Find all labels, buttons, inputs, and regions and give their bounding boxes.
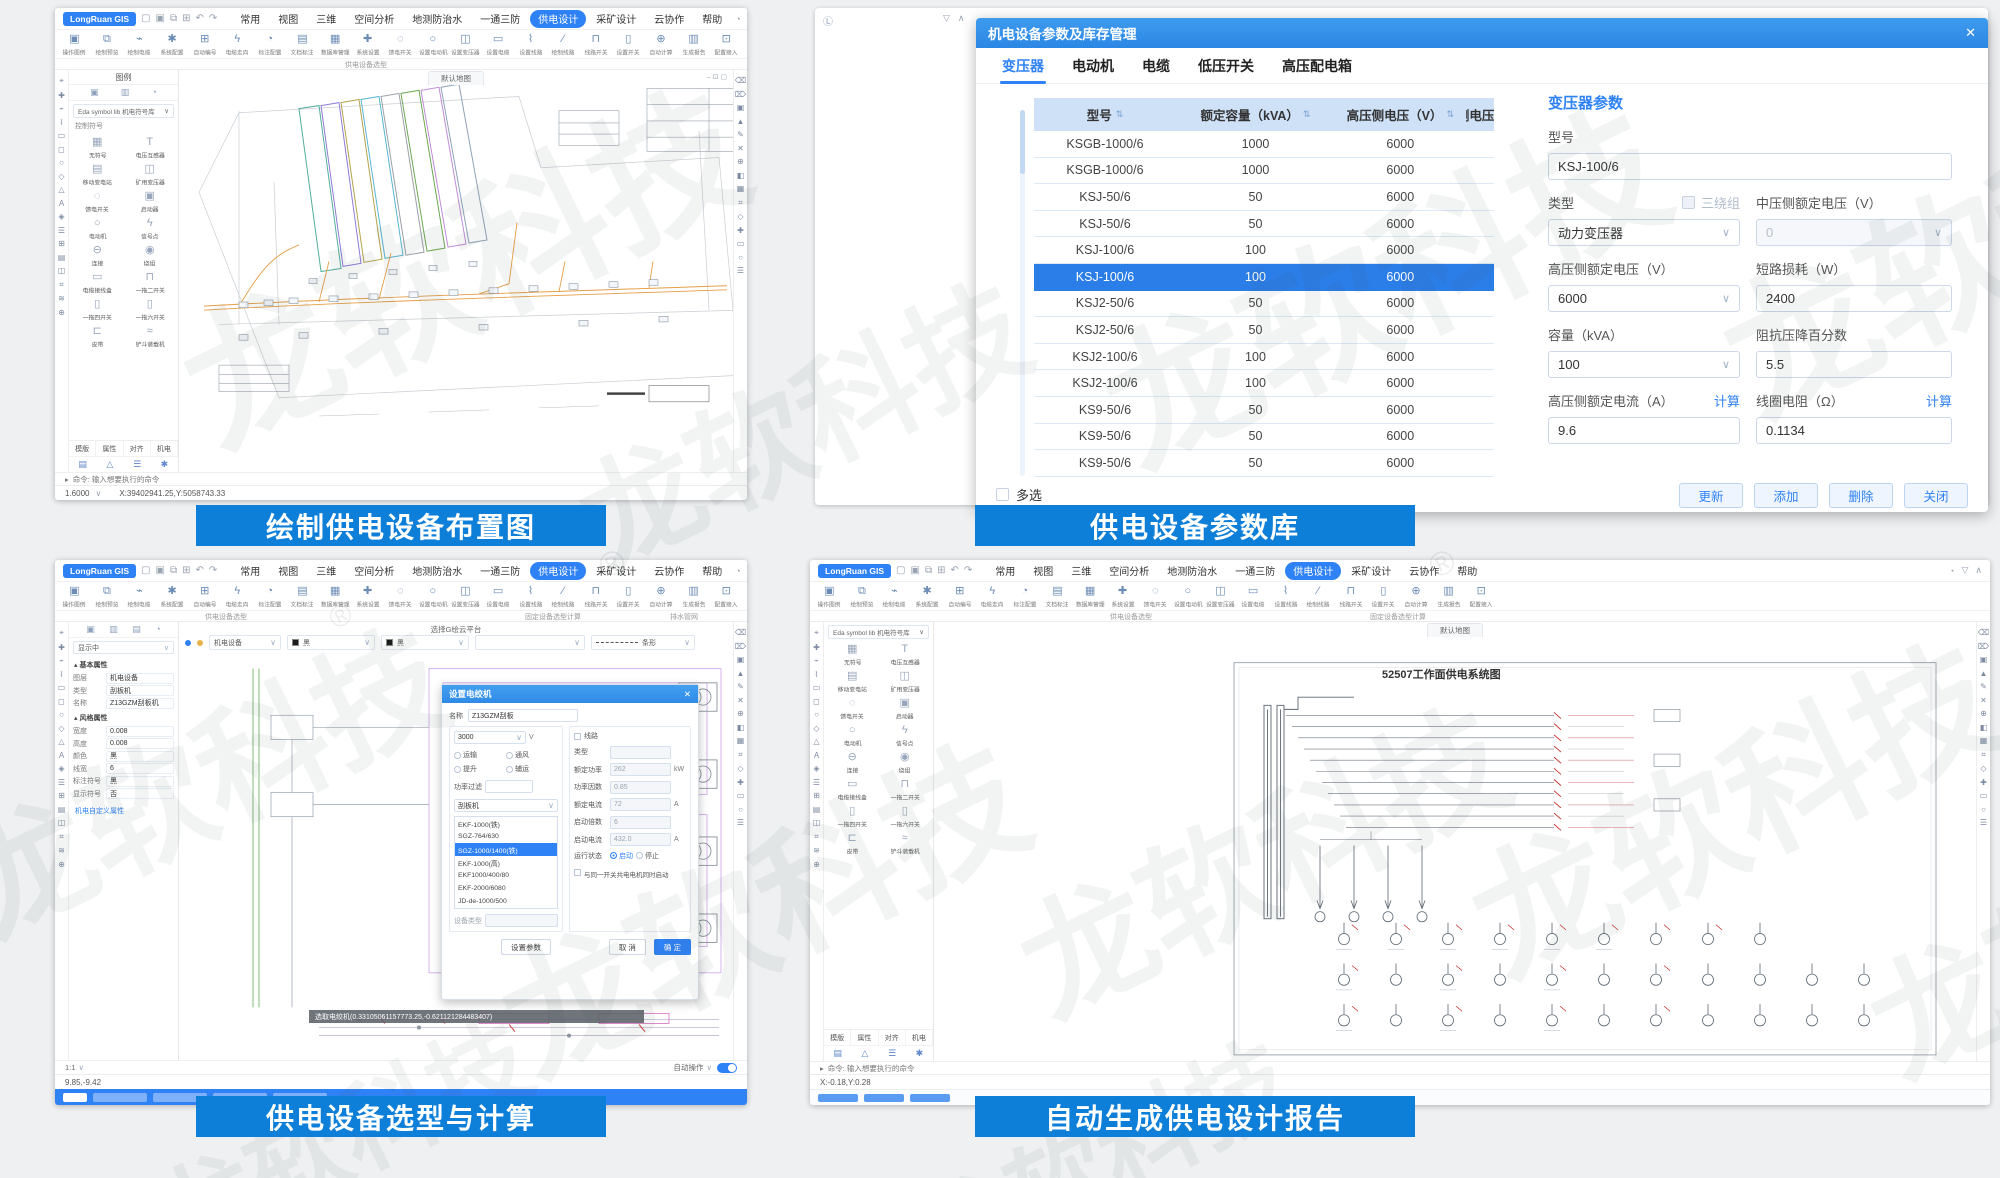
- device-type-input[interactable]: [485, 914, 558, 927]
- titlebar-icon[interactable]: ⊞: [182, 565, 190, 576]
- edit-tool-icon[interactable]: ☰: [1980, 818, 1987, 827]
- edit-tool-icon[interactable]: ⊕: [737, 709, 744, 718]
- property-row[interactable]: 颜色 黑: [73, 751, 174, 762]
- use-radio[interactable]: 运输: [454, 750, 506, 760]
- titlebar-icon[interactable]: ⧉: [170, 13, 177, 24]
- menu-item[interactable]: 地测防治水: [1159, 562, 1225, 580]
- sort-icon[interactable]: ⇅: [1446, 109, 1454, 120]
- table-row[interactable]: KSJ2-100/6 100 6000: [1034, 370, 1494, 397]
- color-select[interactable]: 黑∨: [287, 635, 375, 650]
- menu-item[interactable]: 帮助: [694, 10, 730, 28]
- titlebar-icon[interactable]: ▣: [910, 565, 919, 576]
- symbol-item[interactable]: ϟ 信号点: [124, 217, 177, 241]
- symbol-item[interactable]: ϟ 信号点: [879, 724, 932, 748]
- toolbar-button[interactable]: ▦ 数据库管理: [1074, 585, 1107, 609]
- set-params-button[interactable]: 设置参数: [501, 939, 551, 955]
- toolbar-button[interactable]: ▭ 设置电缆: [1237, 585, 1270, 609]
- titlebar-icon[interactable]: ↶: [195, 13, 203, 24]
- menu-item[interactable]: 供电设计: [530, 10, 586, 28]
- menu-item[interactable]: 采矿设计: [588, 562, 644, 580]
- edit-tool-icon[interactable]: ⌗: [1981, 750, 1986, 760]
- close-icon[interactable]: ✕: [684, 689, 691, 700]
- linetype-select[interactable]: 条形∨: [591, 635, 695, 650]
- toolbar-button[interactable]: ⊕ 自动计算: [645, 33, 678, 57]
- device-list-item[interactable]: EKF-1000(铁): [455, 817, 557, 830]
- sidebar-tab-icon[interactable]: ▤: [824, 1046, 851, 1061]
- menu-item[interactable]: 一通三防: [1227, 562, 1283, 580]
- draw-tool-icon[interactable]: ◈: [813, 764, 819, 773]
- titlebar-icon[interactable]: ▢: [896, 565, 905, 576]
- toolbar-button[interactable]: ▯ 设置开关: [612, 33, 645, 57]
- menu-item[interactable]: 供电设计: [530, 562, 586, 580]
- name-input[interactable]: Z13GZM刮板: [468, 709, 578, 722]
- draw-tool-icon[interactable]: ◫: [813, 818, 821, 827]
- draw-tool-icon[interactable]: ⊞: [58, 791, 65, 800]
- titlebar-right-icon[interactable]: ◔: [735, 566, 740, 576]
- symbol-item[interactable]: ▤ 移动变电站: [71, 163, 124, 187]
- edit-tool-icon[interactable]: ▣: [1980, 655, 1988, 664]
- toolbar-button[interactable]: ⊡ 配置接入: [710, 585, 743, 609]
- symbol-item[interactable]: ○ 电动机: [71, 217, 124, 241]
- edit-tool-icon[interactable]: ☰: [737, 818, 744, 827]
- symbol-item[interactable]: ◫ 矿用变压器: [879, 670, 932, 694]
- toolbar-button[interactable]: ⌁ 绘制电缆: [123, 33, 156, 57]
- toolbar-button[interactable]: ◌ 馈电开关: [384, 33, 417, 57]
- close-icon[interactable]: ✕: [1965, 25, 1976, 41]
- device-list-item[interactable]: EKF-2000/6080: [455, 882, 557, 895]
- draw-tool-icon[interactable]: ⌁: [59, 104, 64, 113]
- symbol-item[interactable]: T 电压互感器: [879, 643, 932, 667]
- property-row[interactable]: 显示符号 否: [73, 788, 174, 799]
- table-row[interactable]: KSGB-1000/6 1000 6000: [1034, 131, 1494, 158]
- toolbar-button[interactable]: ○ 设置电动机: [1172, 585, 1205, 609]
- draw-tool-icon[interactable]: ○: [59, 710, 64, 719]
- edit-tool-icon[interactable]: ⊕: [1980, 709, 1987, 718]
- menu-item[interactable]: 云协作: [1401, 562, 1447, 580]
- draw-tool-icon[interactable]: A: [59, 751, 64, 760]
- edit-tool-icon[interactable]: ▲: [737, 669, 745, 678]
- menu-item[interactable]: 云协作: [646, 10, 692, 28]
- menu-item[interactable]: 地测防治水: [404, 10, 470, 28]
- draw-tool-icon[interactable]: △: [58, 185, 64, 194]
- symbol-item[interactable]: ⊓ 一拖二开关: [124, 271, 177, 295]
- symbol-item[interactable]: ▭ 电缆接线盒: [71, 271, 124, 295]
- toolbar-button[interactable]: ⌁ 绘制电缆: [878, 585, 911, 609]
- toolbar-button[interactable]: ∕ 绘制线路: [547, 585, 580, 609]
- draw-tool-icon[interactable]: ◻: [813, 697, 820, 706]
- symbol-item[interactable]: ◌ 馈电开关: [826, 697, 879, 721]
- table-row[interactable]: KS9-50/6 50 6000: [1034, 424, 1494, 451]
- symbol-item[interactable]: ≈ 铲斗装载机: [124, 325, 177, 349]
- toolbar-button[interactable]: ▦ 数据库管理: [319, 585, 352, 609]
- edit-tool-icon[interactable]: ✕: [737, 696, 744, 705]
- menu-item[interactable]: 供电设计: [1285, 562, 1341, 580]
- titlebar-icon[interactable]: ↷: [209, 565, 217, 576]
- symbol-item[interactable]: ▦ 无符号: [826, 643, 879, 667]
- draw-tool-icon[interactable]: ◇: [58, 724, 64, 733]
- custom-props-link[interactable]: 机电自定义属性: [69, 801, 178, 821]
- menu-item[interactable]: 采矿设计: [1343, 562, 1399, 580]
- section-style-props[interactable]: ▴ 风格属性: [69, 710, 178, 724]
- toolbar-button[interactable]: ⊓ 线路开关: [580, 33, 613, 57]
- titlebar-icon[interactable]: ▣: [155, 13, 164, 24]
- canvas-controls[interactable]: – ⊡ ▢: [707, 73, 727, 81]
- symbol-item[interactable]: ▣ 启动器: [879, 697, 932, 721]
- toolbar-button[interactable]: ⌇ 设置线路: [1269, 585, 1302, 609]
- toolbar-button[interactable]: ▯ 设置开关: [1367, 585, 1400, 609]
- titlebar-right-icon[interactable]: ◔: [735, 14, 740, 24]
- menu-item[interactable]: 视图: [270, 562, 306, 580]
- toolbar-button[interactable]: ▣ 操作图例: [58, 585, 91, 609]
- edit-tool-icon[interactable]: ✕: [1980, 696, 1987, 705]
- edit-tool-icon[interactable]: ▣: [737, 103, 745, 112]
- toolbar-button[interactable]: ▤ 文档标注: [286, 33, 319, 57]
- toolbar-button[interactable]: ✚ 系统设置: [351, 585, 384, 609]
- draw-tool-icon[interactable]: ✚: [813, 643, 820, 652]
- titlebar-icon[interactable]: ↶: [195, 565, 203, 576]
- toolbar-button[interactable]: ▣ 操作图例: [813, 585, 846, 609]
- menu-item[interactable]: 三维: [308, 10, 344, 28]
- symbol-item[interactable]: ▯ 一拖六开关: [879, 805, 932, 829]
- edit-tool-icon[interactable]: ⌦: [1978, 642, 1989, 651]
- menu-item[interactable]: 空间分析: [346, 562, 402, 580]
- use-radio[interactable]: 辅运: [506, 764, 558, 774]
- toolbar-button[interactable]: ⌁ 绘制电缆: [123, 585, 156, 609]
- edit-tool-icon[interactable]: ▭: [737, 791, 745, 800]
- three-winding-checkbox[interactable]: [1682, 196, 1695, 209]
- toolbar-button[interactable]: ⊡ 配置接入: [710, 33, 743, 57]
- state-off-radio[interactable]: 停止: [636, 851, 659, 861]
- command-row[interactable]: ▸ 命令: 输入想要执行的命令: [55, 472, 747, 485]
- edit-tool-icon[interactable]: ◇: [737, 764, 743, 773]
- auto-operate-toggle[interactable]: [717, 1063, 737, 1073]
- draw-tool-icon[interactable]: ⊞: [58, 239, 65, 248]
- chevron-down-icon[interactable]: ∨: [95, 489, 101, 498]
- titlebar-icon[interactable]: ⊞: [182, 13, 190, 24]
- drawing-canvas-report[interactable]: 默认地图 52507工作面供电系统图: [934, 622, 1976, 1061]
- sidebar-tab-icon[interactable]: ▤: [69, 457, 96, 472]
- canvas-tab[interactable]: 默认地图: [428, 71, 484, 85]
- draw-tool-icon[interactable]: ▭: [58, 683, 66, 692]
- edit-tool-icon[interactable]: ◇: [1980, 764, 1986, 773]
- state-on-radio[interactable]: 启动: [610, 851, 633, 861]
- sidebar-tab-icon[interactable]: ☰: [879, 1046, 906, 1061]
- property-row[interactable]: 标注符号 黑: [73, 776, 174, 787]
- edit-tool-icon[interactable]: ◇: [737, 212, 743, 221]
- edit-tool-icon[interactable]: ▲: [737, 117, 745, 126]
- menu-item[interactable]: 常用: [232, 10, 268, 28]
- legend-icon[interactable]: ▥: [121, 87, 130, 98]
- toolbar-button[interactable]: ▣ 操作图例: [58, 33, 91, 57]
- toolbar-button[interactable]: ▯ 设置开关: [612, 585, 645, 609]
- sidebar-tab-icon[interactable]: △: [851, 1046, 878, 1061]
- dialog-button[interactable]: 关闭: [1904, 483, 1968, 508]
- draw-tool-icon[interactable]: ✚: [58, 643, 65, 652]
- toolbar-button[interactable]: ⊞ 自动编号: [943, 585, 976, 609]
- draw-tool-icon[interactable]: ⌖: [59, 628, 64, 638]
- draw-tool-icon[interactable]: ▤: [58, 253, 66, 262]
- toolbar-button[interactable]: ⊕ 自动计算: [1400, 585, 1433, 609]
- simul-start-checkbox[interactable]: [574, 869, 581, 876]
- symbol-item[interactable]: ◫ 矿用变压器: [124, 163, 177, 187]
- edit-tool-icon[interactable]: ◧: [1980, 723, 1988, 732]
- toolbar-button[interactable]: ▥ 生成报告: [677, 33, 710, 57]
- edit-tool-icon[interactable]: ▣: [737, 655, 745, 664]
- edit-tool-icon[interactable]: ◧: [737, 171, 745, 180]
- drawing-canvas-schematic[interactable]: 选择G绘云平台 机电设备∨ 黑∨ 黑∨ ∨ 条形∨: [179, 622, 733, 1060]
- edit-tool-icon[interactable]: ✕: [737, 144, 744, 153]
- edit-tool-icon[interactable]: ⌗: [738, 750, 743, 760]
- type-select[interactable]: 动力变压器∨: [1548, 219, 1740, 246]
- toolbar-button[interactable]: ◫ 设置变压器: [1204, 585, 1237, 609]
- toolbar-button[interactable]: ◫ 设置变压器: [449, 585, 482, 609]
- titlebar-icon[interactable]: ⧉: [170, 565, 177, 576]
- sidebar-tab[interactable]: 对齐: [879, 1030, 906, 1045]
- symbol-item[interactable]: T 电压互感器: [124, 136, 177, 160]
- menu-item[interactable]: 空间分析: [1101, 562, 1157, 580]
- toolbar-button[interactable]: ▤ 文档标注: [286, 585, 319, 609]
- coil-resistance-input[interactable]: 0.1134: [1756, 417, 1952, 444]
- menu-item[interactable]: 常用: [232, 562, 268, 580]
- sidebar-tab[interactable]: 模版: [824, 1030, 851, 1045]
- symbol-item[interactable]: ▯ 一拖四开关: [826, 805, 879, 829]
- toolbar-button[interactable]: ▥ 生成报告: [677, 585, 710, 609]
- menu-item[interactable]: 一通三防: [472, 562, 528, 580]
- draw-tool-icon[interactable]: △: [58, 737, 64, 746]
- line-checkbox[interactable]: [574, 733, 581, 740]
- props-icon[interactable]: ◔: [155, 624, 160, 635]
- titlebar-icon[interactable]: ▢: [141, 565, 150, 576]
- toolbar-button[interactable]: ⊞ 自动编号: [188, 33, 221, 57]
- sidebar-tab-icon[interactable]: ✱: [151, 457, 178, 472]
- toolbar-button[interactable]: ▤ 文档标注: [1041, 585, 1074, 609]
- symbol-item[interactable]: ⊏ 皮带: [826, 832, 879, 856]
- toolbar-button[interactable]: ∕ 绘制线路: [1302, 585, 1335, 609]
- color-select[interactable]: 黑∨: [381, 635, 469, 650]
- property-row[interactable]: 宽度 0.008: [73, 726, 174, 737]
- symbol-item[interactable]: ▦ 无符号: [71, 136, 124, 160]
- toolbar-button[interactable]: ϟ 电缆走向: [221, 33, 254, 57]
- edit-tool-icon[interactable]: ✎: [737, 130, 744, 139]
- draw-tool-icon[interactable]: ☰: [813, 778, 820, 787]
- toolbar-button[interactable]: ⊓ 线路开关: [1335, 585, 1368, 609]
- edit-tool-icon[interactable]: ✚: [737, 778, 744, 787]
- collapse-icon[interactable]: ▽: [943, 13, 950, 24]
- edit-tool-icon[interactable]: ▦: [737, 736, 745, 745]
- menu-item[interactable]: 采矿设计: [588, 10, 644, 28]
- titlebar-icon[interactable]: ↶: [950, 565, 958, 576]
- edit-tool-icon[interactable]: ⌫: [1978, 628, 1989, 637]
- device-select[interactable]: 刮板机∨: [454, 799, 558, 812]
- toolbar-button[interactable]: ▭ 设置电缆: [482, 585, 515, 609]
- power-filter-input[interactable]: [485, 780, 533, 793]
- symbol-item[interactable]: ▯ 一拖六开关: [124, 298, 177, 322]
- section-basic-props[interactable]: ▴ 基本属性: [69, 657, 178, 671]
- draw-tool-icon[interactable]: ⌇: [815, 670, 819, 679]
- draw-tool-icon[interactable]: ⊕: [58, 860, 65, 869]
- toolbar-button[interactable]: ⊓ 线路开关: [580, 585, 613, 609]
- edit-tool-icon[interactable]: ⌦: [735, 642, 746, 651]
- mid-voltage-select[interactable]: 0∨: [1756, 219, 1952, 246]
- edit-tool-icon[interactable]: ✚: [737, 226, 744, 235]
- taskbar-item[interactable]: [63, 1093, 87, 1102]
- model-input[interactable]: KSJ-100/6: [1548, 153, 1952, 180]
- canvas-tab[interactable]: 默认地图: [1427, 623, 1483, 637]
- scale-value[interactable]: 1:1: [65, 1063, 75, 1072]
- empty-select[interactable]: ∨: [475, 635, 585, 650]
- toolbar-button[interactable]: ϟ 电缆走向: [221, 585, 254, 609]
- sidebar-tab[interactable]: 模版: [69, 441, 96, 456]
- sidebar-tab[interactable]: 对齐: [124, 441, 151, 456]
- titlebar-icon[interactable]: ⧉: [925, 565, 932, 576]
- command-row[interactable]: ▸ 命令: 输入想要执行的命令: [810, 1061, 1990, 1074]
- menu-item[interactable]: 三维: [308, 562, 344, 580]
- color-dot-icon[interactable]: [185, 640, 191, 646]
- sidebar-tab[interactable]: 属性: [96, 441, 123, 456]
- draw-tool-icon[interactable]: ≋: [813, 846, 820, 855]
- draw-tool-icon[interactable]: ◫: [58, 818, 66, 827]
- edit-tool-icon[interactable]: ✎: [737, 682, 744, 691]
- props-icon[interactable]: ▣: [86, 624, 95, 635]
- draw-tool-icon[interactable]: ⌗: [59, 832, 64, 842]
- dialog-button[interactable]: 添加: [1754, 483, 1818, 508]
- titlebar-icon[interactable]: ▢: [141, 13, 150, 24]
- calc-link[interactable]: 计算: [1926, 391, 1952, 410]
- table-row[interactable]: KSJ2-50/6 50 6000: [1034, 317, 1494, 344]
- draw-tool-icon[interactable]: ◇: [58, 172, 64, 181]
- table-row[interactable]: KSJ-50/6 50 6000: [1034, 184, 1494, 211]
- titlebar-icon[interactable]: ↷: [964, 565, 972, 576]
- draw-tool-icon[interactable]: ⌇: [60, 670, 64, 679]
- toolbar-button[interactable]: ◔ 标注配置: [254, 585, 287, 609]
- edit-tool-icon[interactable]: ✎: [1980, 682, 1987, 691]
- taskbar-item[interactable]: [910, 1094, 950, 1102]
- taskbar-item[interactable]: [818, 1094, 858, 1102]
- draw-tool-icon[interactable]: ○: [59, 158, 64, 167]
- menu-item[interactable]: 帮助: [1449, 562, 1485, 580]
- edit-tool-icon[interactable]: ▲: [1980, 669, 1988, 678]
- symbol-library-select[interactable]: Eda symbol lib 机电符号库∨: [828, 625, 929, 639]
- titlebar-icon[interactable]: ↷: [209, 13, 217, 24]
- property-row[interactable]: 名称 Z13GZM刮板机: [73, 698, 174, 709]
- titlebar-right-icon[interactable]: ∧: [1975, 565, 1982, 576]
- taskbar-item[interactable]: [93, 1093, 147, 1102]
- toolbar-button[interactable]: ▭ 设置电缆: [482, 33, 515, 57]
- menu-item[interactable]: 帮助: [694, 562, 730, 580]
- toolbar-button[interactable]: ◔ 标注配置: [254, 33, 287, 57]
- expand-icon[interactable]: ∧: [958, 13, 965, 24]
- symbol-item[interactable]: ⊖ 连接: [826, 751, 879, 775]
- menu-item[interactable]: 空间分析: [346, 10, 402, 28]
- edit-tool-icon[interactable]: ◧: [737, 723, 745, 732]
- table-row[interactable]: KSJ-100/6 100 6000: [1034, 264, 1494, 291]
- table-row[interactable]: KSJ-50/6 50 6000: [1034, 211, 1494, 238]
- symbol-item[interactable]: ≈ 铲斗装载机: [879, 832, 932, 856]
- use-radio[interactable]: 提升: [454, 764, 506, 774]
- edit-tool-icon[interactable]: ○: [738, 805, 743, 814]
- chevron-down-icon[interactable]: ∨: [707, 1063, 713, 1072]
- toolbar-button[interactable]: ◔ 标注配置: [1009, 585, 1042, 609]
- draw-tool-icon[interactable]: ⊞: [813, 791, 820, 800]
- edit-tool-icon[interactable]: ☰: [737, 266, 744, 275]
- device-list-item[interactable]: EKF1000/400/80: [455, 869, 557, 882]
- draw-tool-icon[interactable]: ◈: [58, 764, 64, 773]
- toolbar-button[interactable]: ○ 设置电动机: [417, 33, 450, 57]
- toolbar-button[interactable]: ✱ 系统配置: [156, 33, 189, 57]
- equipment-tab[interactable]: 低压开关: [1186, 48, 1266, 84]
- toolbar-button[interactable]: ⊡ 配置接入: [1465, 585, 1498, 609]
- draw-tool-icon[interactable]: ⌇: [60, 118, 64, 127]
- device-list-item[interactable]: SGZ-1000/1400(铁): [455, 843, 557, 856]
- symbol-item[interactable]: ◉ 绕组: [879, 751, 932, 775]
- symbol-item[interactable]: ⊏ 皮带: [71, 325, 124, 349]
- toolbar-button[interactable]: ⧉ 绘制预览: [91, 585, 124, 609]
- property-row[interactable]: 图层 机电设备: [73, 673, 174, 684]
- symbol-item[interactable]: ▯ 一拖四开关: [71, 298, 124, 322]
- dialog-button[interactable]: 删除: [1829, 483, 1893, 508]
- toolbar-button[interactable]: ▦ 数据库管理: [319, 33, 352, 57]
- drawing-canvas-layout[interactable]: 默认地图 – ⊡ ▢: [179, 70, 733, 472]
- draw-tool-icon[interactable]: ⌗: [59, 280, 64, 290]
- props-icon[interactable]: ▤: [132, 624, 141, 635]
- taskbar-item[interactable]: [864, 1094, 904, 1102]
- sidebar-tab-icon[interactable]: ☰: [124, 457, 151, 472]
- table-header[interactable]: 低压侧电压（V）: [1466, 105, 1494, 124]
- use-radio[interactable]: 通风: [506, 750, 558, 760]
- symbol-item[interactable]: ▤ 移动变电站: [826, 670, 879, 694]
- symbol-item[interactable]: ◌ 馈电开关: [71, 190, 124, 214]
- sort-icon[interactable]: ⇅: [1116, 109, 1124, 120]
- symbol-library-select[interactable]: Eda symbol lib 机电符号库∨: [73, 104, 174, 118]
- edit-tool-icon[interactable]: ○: [1981, 805, 1986, 814]
- toolbar-button[interactable]: ∕ 绘制线路: [547, 33, 580, 57]
- table-row[interactable]: KS9-50/6 50 6000: [1034, 397, 1494, 424]
- table-scrollbar[interactable]: [1020, 110, 1025, 476]
- zoom-level[interactable]: 1.6000: [65, 489, 89, 498]
- draw-tool-icon[interactable]: ☰: [58, 226, 65, 235]
- draw-tool-icon[interactable]: ◫: [58, 266, 66, 275]
- equipment-tab[interactable]: 电缆: [1130, 48, 1182, 84]
- menu-item[interactable]: 常用: [987, 562, 1023, 580]
- draw-tool-icon[interactable]: △: [813, 737, 819, 746]
- table-header[interactable]: 高压侧电压（V）⇅: [1335, 105, 1466, 124]
- toolbar-button[interactable]: ⊞ 自动编号: [188, 585, 221, 609]
- draw-tool-icon[interactable]: ▤: [813, 805, 821, 814]
- edit-tool-icon[interactable]: ▭: [737, 239, 745, 248]
- toolbar-button[interactable]: ✱ 系统配置: [911, 585, 944, 609]
- toolbar-button[interactable]: ⌇ 设置线路: [514, 585, 547, 609]
- titlebar-icon[interactable]: ▣: [155, 565, 164, 576]
- sort-icon[interactable]: ⇅: [1303, 109, 1311, 120]
- toolbar-button[interactable]: ○ 设置电动机: [417, 585, 450, 609]
- legend-icon[interactable]: ▣: [90, 87, 99, 98]
- sidebar-tab-icon[interactable]: △: [96, 457, 123, 472]
- titlebar-icon[interactable]: ⊞: [937, 565, 945, 576]
- sidebar-tab[interactable]: 属性: [851, 1030, 878, 1045]
- draw-tool-icon[interactable]: ⌖: [814, 628, 819, 638]
- toolbar-button[interactable]: ✚ 系统设置: [351, 33, 384, 57]
- toolbar-button[interactable]: ▥ 生成报告: [1432, 585, 1465, 609]
- toolbar-button[interactable]: ⌇ 设置线路: [514, 33, 547, 57]
- symbol-item[interactable]: ◉ 绕组: [124, 244, 177, 268]
- toolbar-button[interactable]: ✚ 系统设置: [1106, 585, 1139, 609]
- legend-icon[interactable]: ◔: [151, 87, 156, 98]
- edit-tool-icon[interactable]: ▭: [1980, 791, 1988, 800]
- draw-tool-icon[interactable]: ≋: [58, 294, 65, 303]
- menu-item[interactable]: 视图: [1025, 562, 1061, 580]
- edit-tool-icon[interactable]: ⌫: [735, 628, 746, 637]
- equipment-tab[interactable]: 高压配电箱: [1270, 48, 1364, 84]
